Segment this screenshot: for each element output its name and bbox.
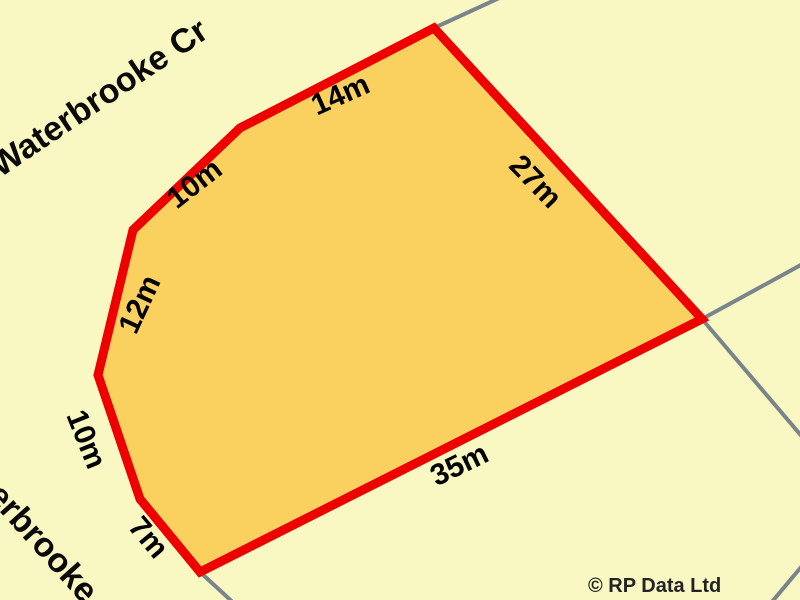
street-name-top: Waterbrooke Cr xyxy=(0,11,215,184)
dimension-label-10m-south: 10m xyxy=(60,405,113,473)
boundary-line-north xyxy=(434,0,508,28)
boundary-line-east-upper xyxy=(702,260,800,319)
boundary-line-east-lower xyxy=(702,319,800,446)
map-canvas: 14m 27m 35m 7m 10m 12m 10m Waterbrooke C… xyxy=(0,0,800,600)
boundary-line-corner xyxy=(766,554,800,600)
parcel-boundary xyxy=(98,28,702,572)
copyright-label: © RP Data Ltd xyxy=(588,575,721,597)
boundary-line-south xyxy=(200,572,238,600)
property-map: 14m 27m 35m 7m 10m 12m 10m Waterbrooke C… xyxy=(0,0,800,600)
street-name-bottom: Waterbrooke Cr xyxy=(0,431,137,600)
